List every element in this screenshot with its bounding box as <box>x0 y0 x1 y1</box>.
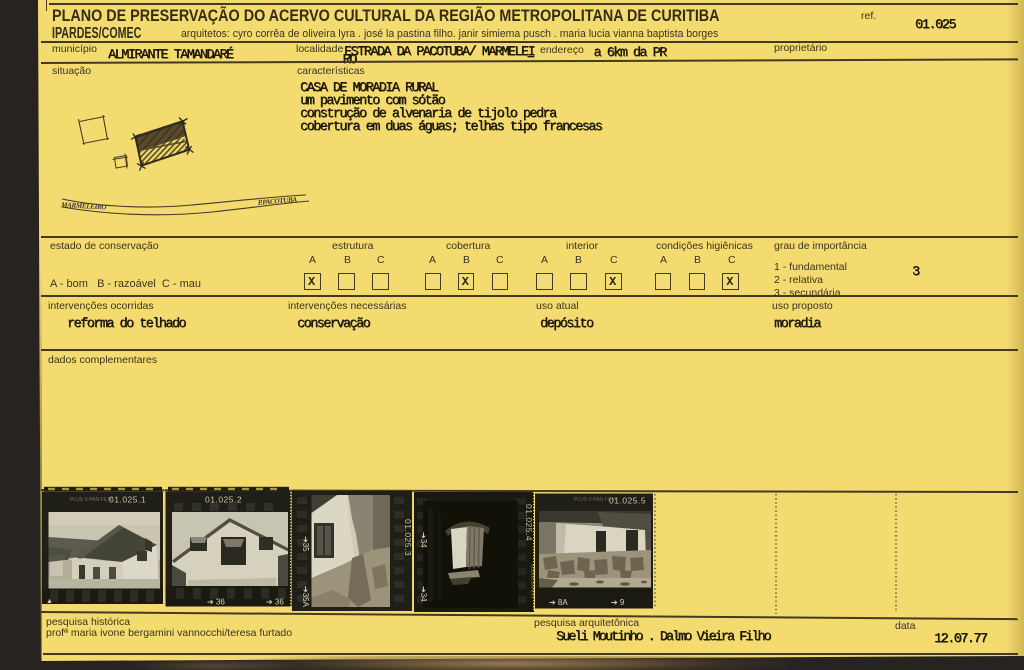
svg-text:01.025.5: 01.025.5 <box>609 496 646 506</box>
svg-text:01.025.4: 01.025.4 <box>524 504 534 541</box>
svg-text:MARMELEIRO: MARMELEIRO <box>60 201 107 211</box>
svg-text:➔34: ➔34 <box>419 586 428 602</box>
svg-text:➔ 36: ➔ 36 <box>207 598 225 607</box>
svg-text:➔ 9: ➔ 9 <box>611 598 625 607</box>
svg-text:P.PACOTUBA: P.PACOTUBA <box>257 196 297 207</box>
svg-text:➔35: ➔35 <box>301 536 310 552</box>
svg-text:▲: ▲ <box>46 598 53 605</box>
svg-text:01.025.3: 01.025.3 <box>403 519 413 556</box>
svg-text:KODAK SAFETY: KODAK SAFETY <box>530 564 535 599</box>
svg-text:01.025.1: 01.025.1 <box>109 495 146 505</box>
svg-text:➔35A: ➔35A <box>301 586 310 608</box>
svg-text:➔34: ➔34 <box>419 532 428 548</box>
svg-text:PLUS X PAN FILM: PLUS X PAN FILM <box>70 497 112 503</box>
svg-text:➔ 36: ➔ 36 <box>266 598 284 607</box>
svg-text:➔ 8A: ➔ 8A <box>549 598 568 607</box>
